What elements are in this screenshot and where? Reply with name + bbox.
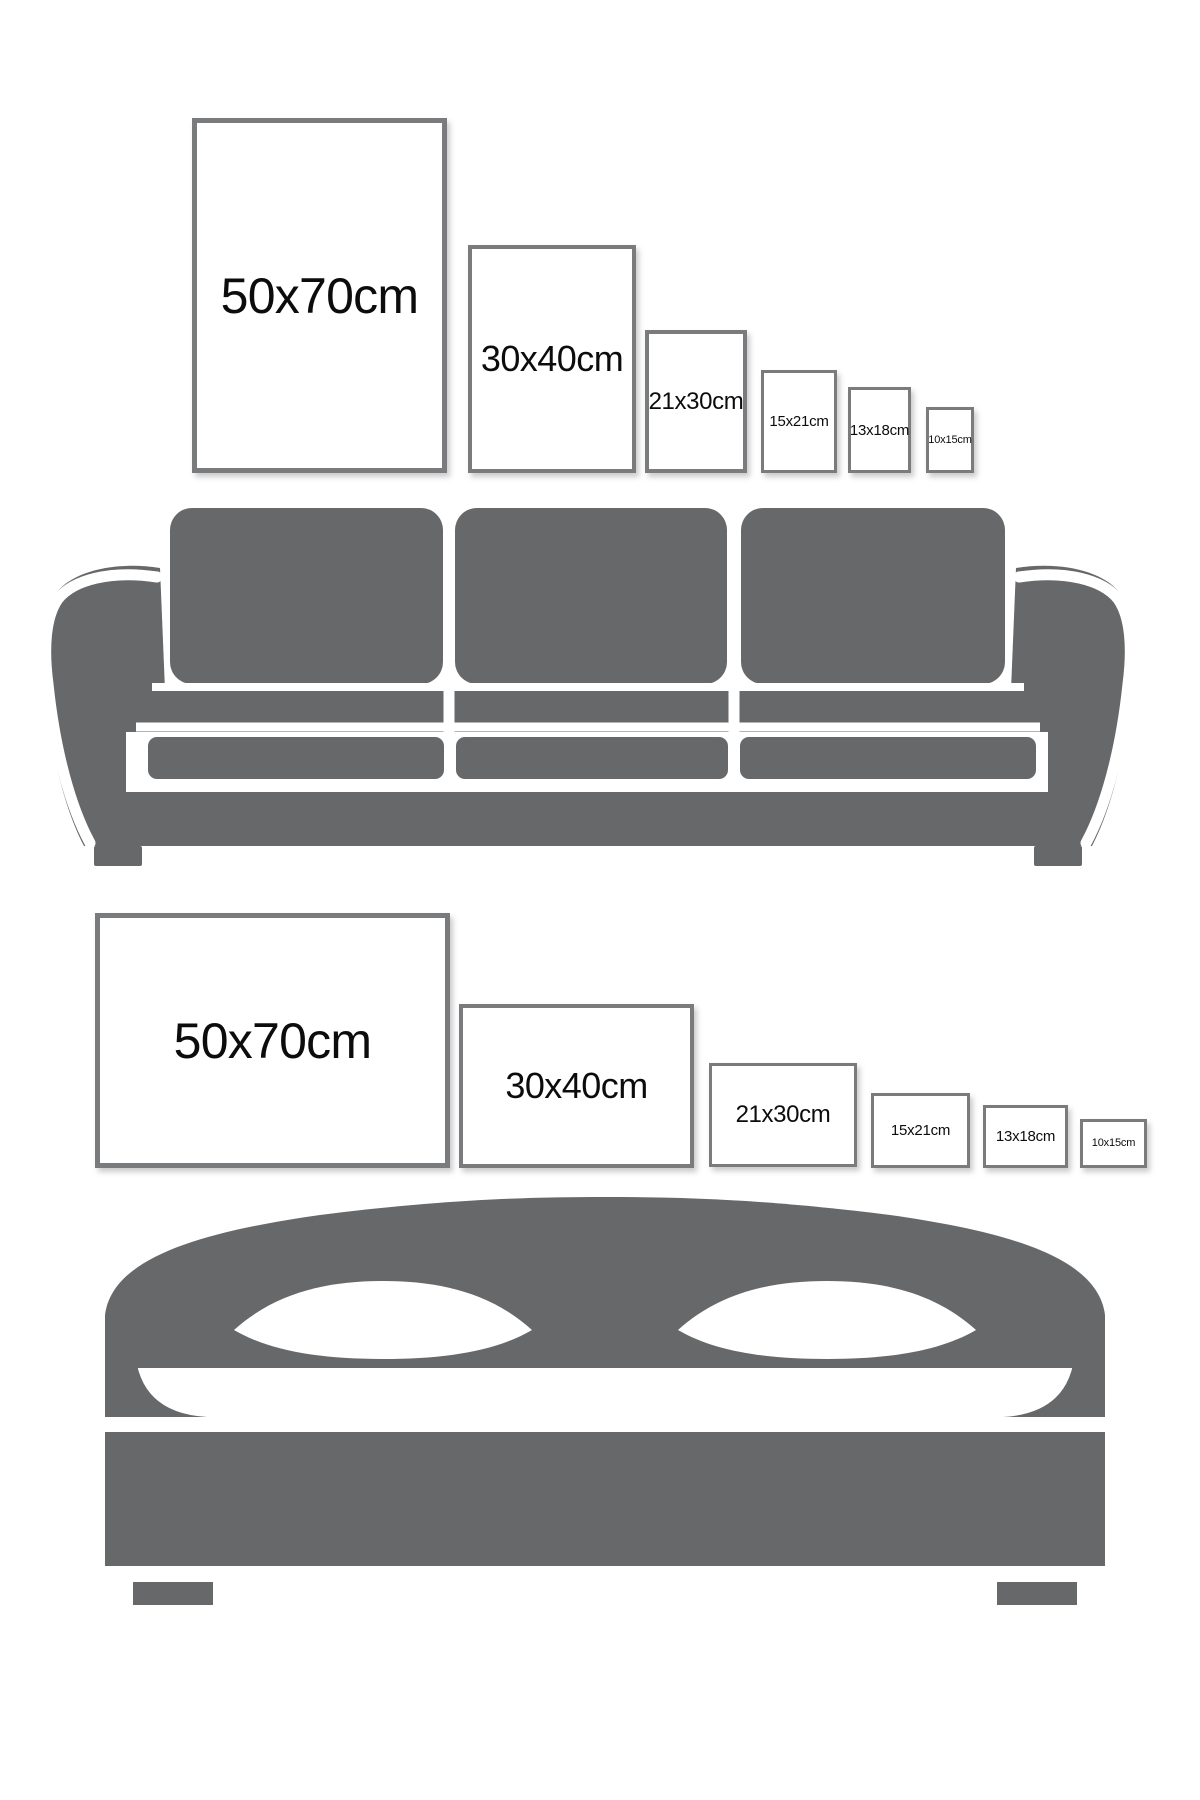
frame-size-label: 15x21cm (769, 414, 828, 429)
sofa-back-cushion-middle (455, 508, 727, 684)
frame-size-label: 21x30cm (649, 390, 744, 414)
frame-size-label: 10x15cm (928, 435, 971, 446)
frame-size-label: 30x40cm (481, 341, 623, 377)
frame-size-label: 50x70cm (174, 1016, 372, 1066)
bed-foot-right (997, 1582, 1077, 1605)
frame-15x21-bed: 15x21cm (871, 1093, 970, 1168)
frame-10x15-bed: 10x15cm (1080, 1119, 1147, 1168)
bed-headboard (105, 1197, 1105, 1368)
sofa-seat-cushion-left (148, 737, 444, 779)
frame-size-label: 13x18cm (850, 423, 909, 438)
frame-30x40-bed: 30x40cm (459, 1004, 694, 1168)
frame-13x18-bed: 13x18cm (983, 1105, 1068, 1168)
frame-13x18-sofa: 13x18cm (848, 387, 911, 473)
bed-icon (105, 1197, 1105, 1605)
frame-size-label: 50x70cm (221, 271, 419, 321)
sofa-icon (43, 508, 1134, 866)
frame-10x15-sofa: 10x15cm (926, 407, 974, 473)
sofa-foot-left (94, 846, 142, 866)
sofa-foot-right (1034, 846, 1082, 866)
frame-21x30-sofa: 21x30cm (645, 330, 747, 473)
frame-size-label: 15x21cm (891, 1123, 950, 1138)
bed-foot-left (133, 1582, 213, 1605)
sofa-seat-cushion-right (740, 737, 1036, 779)
frame-size-label: 10x15cm (1092, 1138, 1135, 1149)
sofa-seat-cushion-middle (456, 737, 728, 779)
frame-30x40-sofa: 30x40cm (468, 245, 636, 473)
size-guide-canvas: 50x70cm 30x40cm 21x30cm 15x21cm 13x18cm … (0, 0, 1200, 1800)
frame-size-label: 21x30cm (736, 1103, 831, 1127)
frame-50x70-bed: 50x70cm (95, 913, 450, 1168)
bed-base (105, 1432, 1105, 1566)
frame-size-label: 30x40cm (505, 1068, 647, 1104)
frame-50x70-sofa: 50x70cm (192, 118, 447, 473)
sofa-back-cushion-left (170, 508, 443, 684)
sofa-back-cushion-right (741, 508, 1005, 684)
frame-size-label: 13x18cm (996, 1129, 1055, 1144)
frame-15x21-sofa: 15x21cm (761, 370, 837, 473)
frame-21x30-bed: 21x30cm (709, 1063, 857, 1167)
